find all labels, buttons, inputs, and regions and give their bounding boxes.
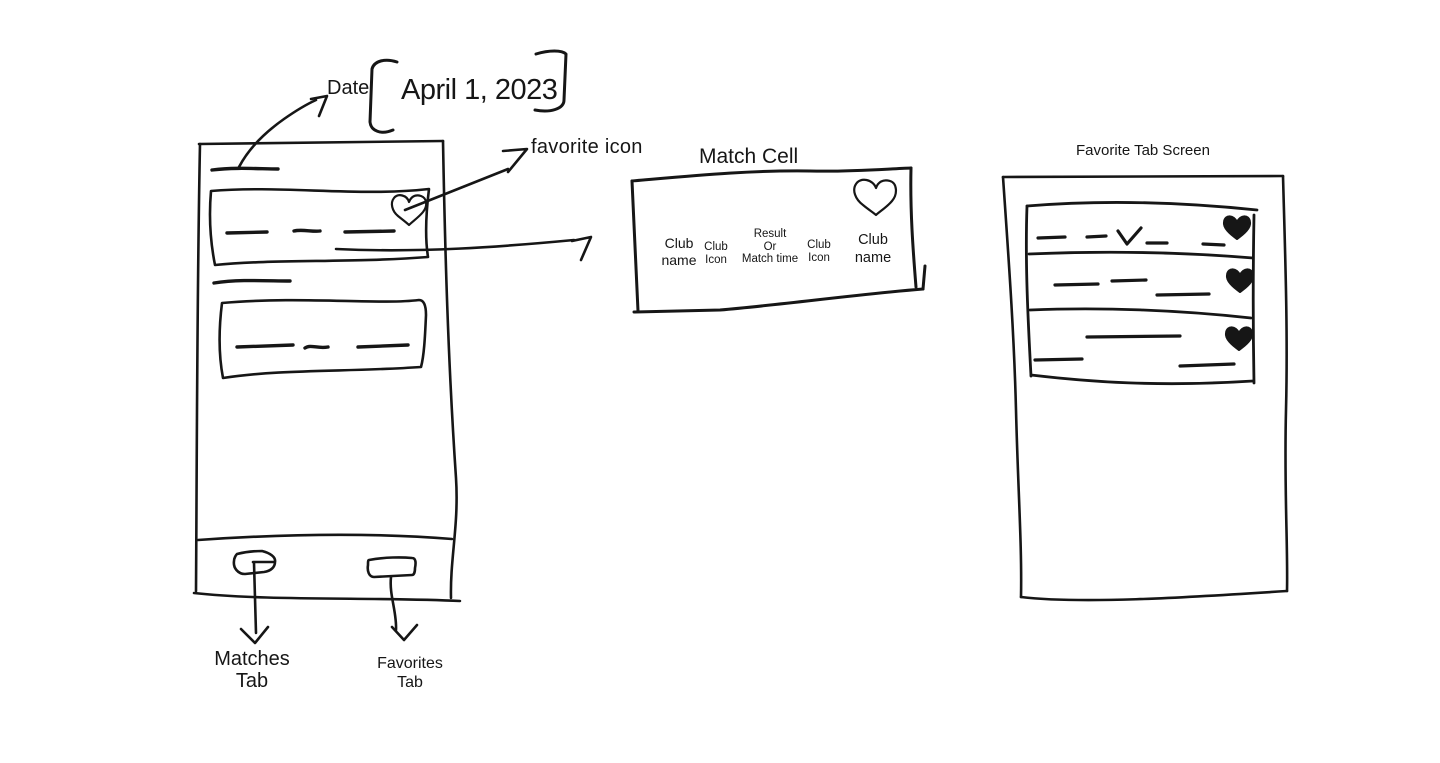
text-placeholder-dash — [345, 231, 394, 232]
favorite-icon-annotation-label: favorite icon — [531, 136, 643, 159]
wireframe-canvas: Date April 1, 2023 favorite icon Match C… — [0, 0, 1440, 763]
cell-left-edge — [632, 181, 638, 311]
match-cell-1 — [210, 189, 429, 265]
cell-right-edge — [911, 168, 916, 287]
text-placeholder-dash — [237, 345, 293, 347]
text-placeholder-dash — [1087, 336, 1180, 337]
text-placeholder-dash — [227, 232, 267, 233]
text-placeholder-dash — [305, 346, 328, 348]
favorite-heart-filled-icon — [1226, 327, 1252, 350]
arrow-head — [241, 627, 268, 643]
list-bottom-edge — [1031, 375, 1253, 384]
date-annotation-label: Date — [327, 77, 369, 100]
phone-left-edge — [196, 144, 200, 591]
favorite-row-3 — [1035, 327, 1252, 366]
date-annotation-arrow — [239, 96, 327, 167]
match-cell-2-outline — [220, 300, 427, 378]
text-placeholder-dash — [1038, 237, 1065, 238]
text-placeholder-dash — [1035, 359, 1082, 360]
favorite-tab-screen-title: Favorite Tab Screen — [1076, 142, 1210, 159]
date-placeholder-line-1 — [212, 168, 278, 170]
arrow-stem — [391, 577, 396, 630]
favorite-icon-annotation-arrow — [405, 149, 527, 210]
favorites-phone-frame — [1003, 176, 1287, 600]
text-placeholder-dash — [294, 230, 320, 231]
text-placeholder-dash — [1203, 244, 1224, 245]
favorite-heart-outline-icon — [854, 180, 896, 215]
match-cell-left-club-icon-label: Club Icon — [696, 241, 736, 267]
match-cell-1-outline — [210, 189, 429, 265]
phone-bottom-edge — [1021, 591, 1287, 600]
match-cell-result-or-time: Result Or Match time — [735, 228, 805, 266]
text-placeholder-dash — [1112, 280, 1146, 281]
row-divider — [1029, 252, 1253, 258]
cell-top-edge — [632, 168, 911, 181]
matches-tab-label: Matches Tab — [202, 648, 302, 692]
match-cell-2 — [220, 300, 427, 378]
checkmark-icon — [1118, 228, 1141, 244]
phone-right-edge — [1283, 176, 1287, 591]
arrow-head — [311, 96, 327, 116]
favorites-tab-arrow — [391, 577, 417, 640]
phone-top-edge — [199, 141, 443, 144]
text-placeholder-dash — [1087, 236, 1106, 237]
row-divider — [1030, 309, 1251, 318]
text-placeholder-dash — [1055, 284, 1098, 285]
phone-bottom-edge — [194, 593, 460, 601]
date-placeholder-line-2 — [214, 281, 290, 284]
cell-bottom-edge — [634, 289, 923, 312]
match-cell-right-club-name: Club name — [843, 232, 903, 267]
list-top-edge — [1027, 203, 1257, 210]
match-cell-title: Match Cell — [699, 145, 798, 169]
text-placeholder-dash — [358, 345, 408, 347]
favorite-heart-filled-icon — [1227, 269, 1253, 292]
match-cell-arrow — [336, 237, 591, 260]
tab-bar-divider — [198, 535, 452, 540]
match-cell-right-club-icon-label: Club Icon — [799, 239, 839, 265]
list-left-edge — [1026, 206, 1031, 376]
text-placeholder-dash — [1157, 294, 1209, 295]
favorite-heart-outline-icon — [392, 195, 426, 225]
favorite-row-1 — [1038, 216, 1250, 245]
arrow-stem — [239, 100, 316, 167]
arrow-stem — [336, 240, 574, 250]
phone-top-edge — [1003, 176, 1283, 177]
phone-right-edge — [443, 141, 457, 598]
text-placeholder-dash — [1180, 364, 1234, 366]
left-bracket — [370, 60, 397, 132]
arrow-head — [572, 237, 591, 260]
phone-left-edge — [1003, 177, 1021, 597]
list-right-edge — [1253, 215, 1254, 383]
favorites-tab-icon — [368, 557, 416, 577]
cell-right-stub — [923, 266, 925, 289]
favorite-row-2 — [1055, 269, 1253, 295]
favorites-tab-icon-outline — [368, 557, 416, 577]
favorite-heart-filled-icon — [1224, 216, 1250, 239]
favorites-tab-label: Favorites Tab — [360, 654, 460, 692]
favorites-list-frame — [1026, 203, 1257, 384]
date-value: April 1, 2023 — [401, 74, 557, 107]
